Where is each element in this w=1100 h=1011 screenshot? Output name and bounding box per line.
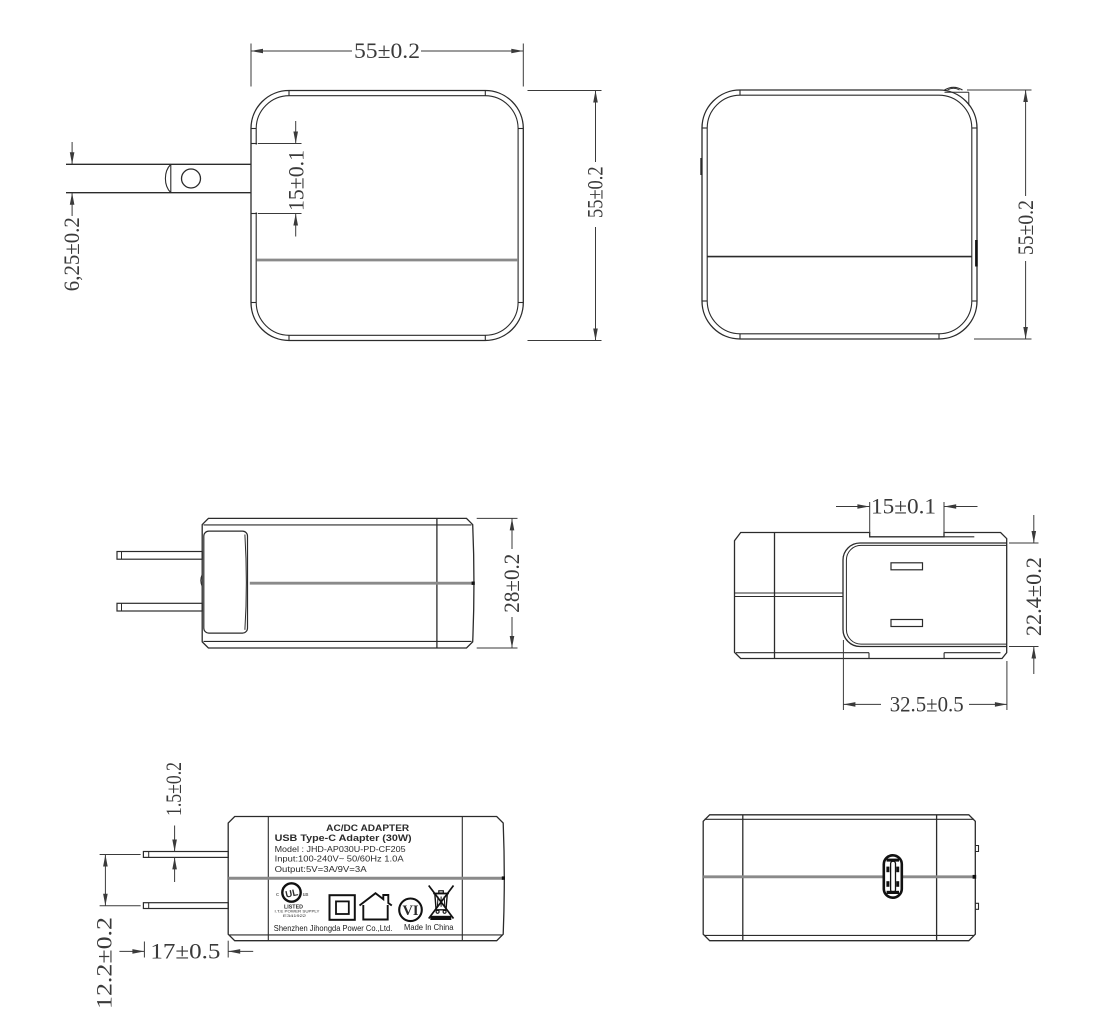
svg-text:32.5±0.5: 32.5±0.5 [890,692,964,717]
svg-text:Shenzhen Jihongda Power Co.,Lt: Shenzhen Jihongda Power Co.,Ltd. [274,923,393,933]
svg-text:us: us [303,892,309,898]
svg-text:Input:100-240V~ 50/60Hz 1.0A: Input:100-240V~ 50/60Hz 1.0A [275,853,404,863]
svg-text:VI: VI [402,903,418,919]
svg-text:Output:5V=3A/9V=3A: Output:5V=3A/9V=3A [275,864,367,874]
svg-text:55±0.2: 55±0.2 [583,166,608,218]
svg-text:12.2±0.2: 12.2±0.2 [92,917,117,1009]
svg-text:Model : JHD-AP030U-PD-CF205: Model : JHD-AP030U-PD-CF205 [275,844,406,854]
svg-text:6,25±0.2: 6,25±0.2 [59,217,84,291]
svg-text:55±0.2: 55±0.2 [1013,200,1038,255]
svg-text:17±0.5: 17±0.5 [150,939,220,964]
svg-text:AC/DC ADAPTER: AC/DC ADAPTER [326,823,410,833]
svg-text:c: c [276,892,279,898]
svg-text:15±0.1: 15±0.1 [871,494,936,519]
svg-text:55±0.2: 55±0.2 [354,38,420,63]
svg-text:15±0.1: 15±0.1 [284,150,309,211]
svg-text:22.4±0.2: 22.4±0.2 [1021,557,1046,636]
svg-text:USB Type-C Adapter (30W): USB Type-C Adapter (30W) [275,833,412,843]
svg-text:28±0.2: 28±0.2 [499,554,524,613]
svg-text:1.5±0.2: 1.5±0.2 [161,762,186,816]
svg-text:E341922: E341922 [283,914,306,918]
svg-text:Made In China: Made In China [404,922,454,932]
svg-text:I.T.E POWER SUPPLY: I.T.E POWER SUPPLY [275,909,321,913]
